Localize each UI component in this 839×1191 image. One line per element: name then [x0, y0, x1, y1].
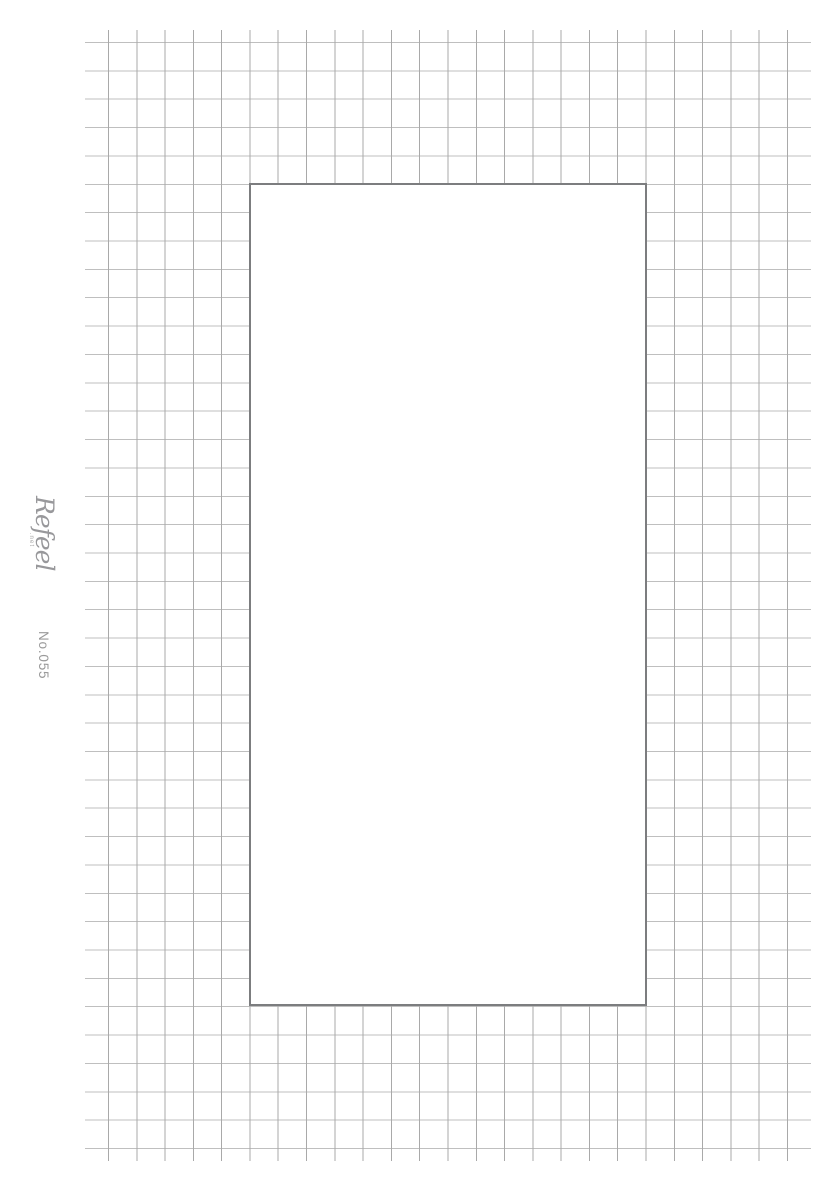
refill-number-label: No.055 — [35, 631, 51, 691]
grid-refill-sheet: Refeel .net No.055 — [0, 0, 839, 1191]
logo-text: Refeel — [32, 496, 57, 568]
memo-frame — [249, 183, 647, 1006]
refeel-logo: Refeel .net — [21, 496, 57, 568]
